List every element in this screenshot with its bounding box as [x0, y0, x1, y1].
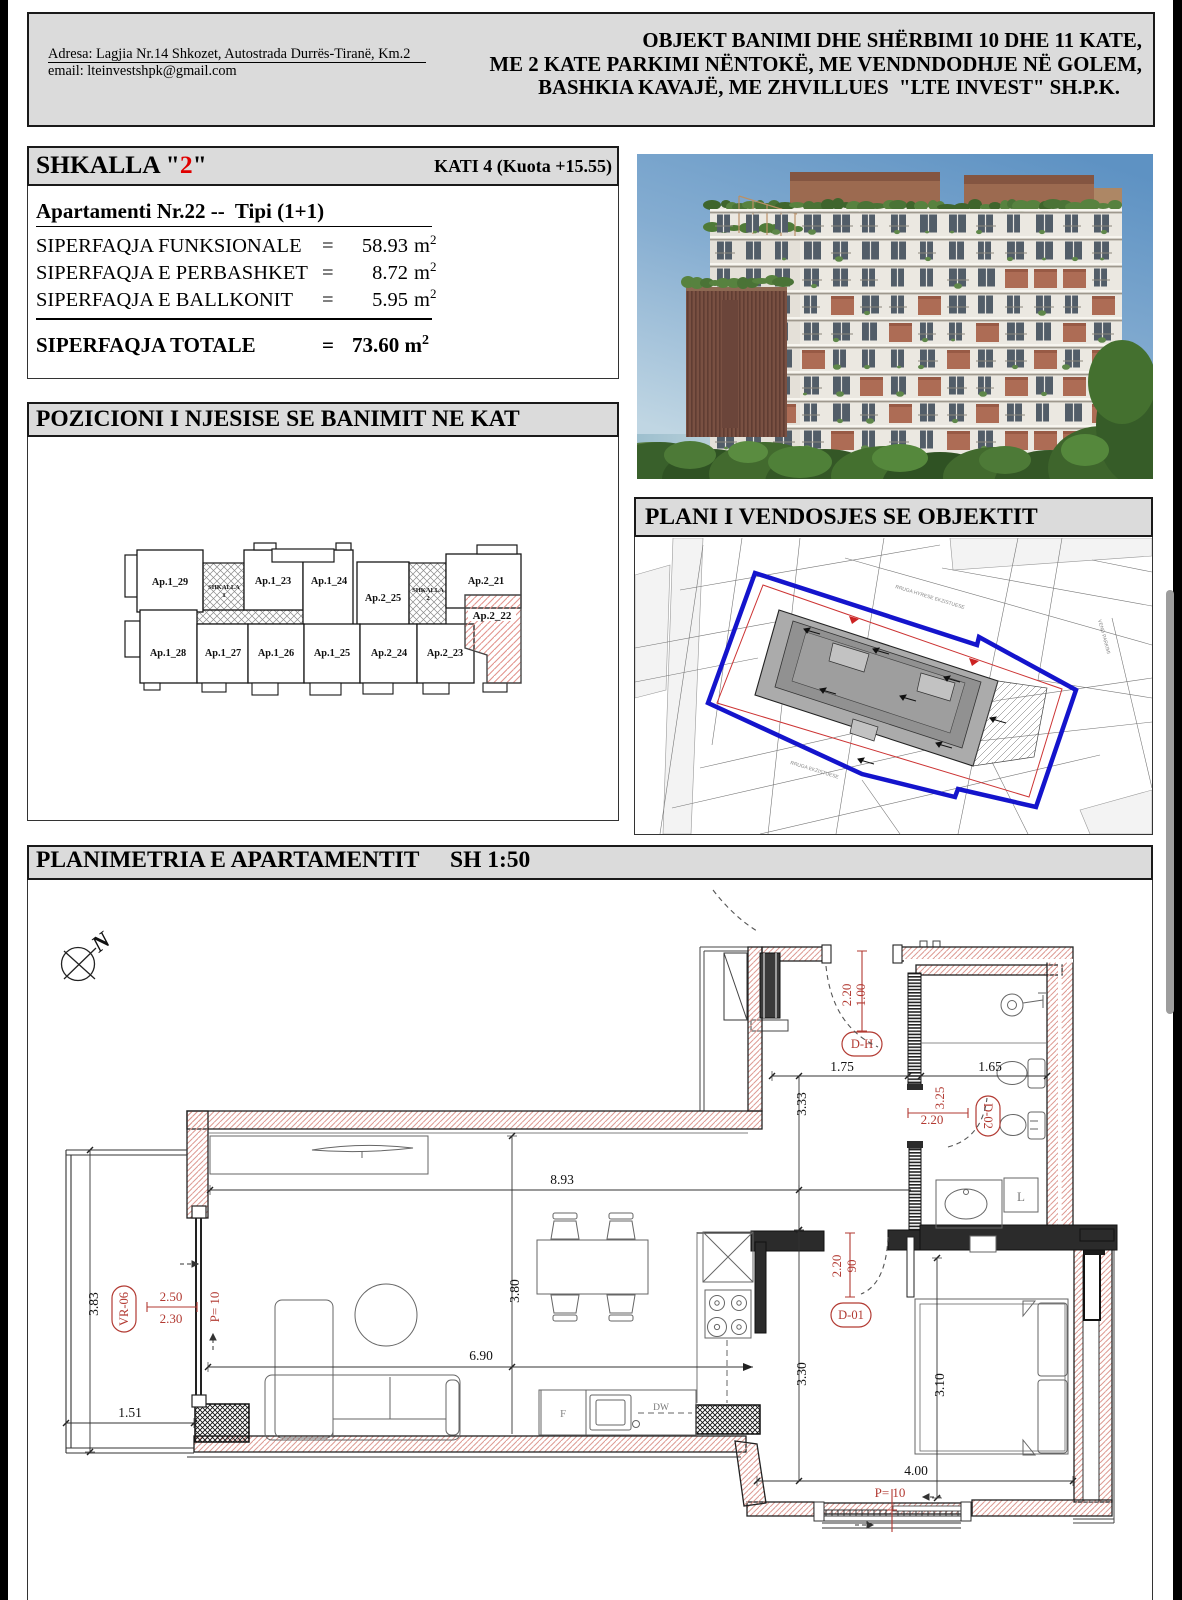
- svg-text:D-H: D-H: [851, 1037, 873, 1051]
- svg-text:1.00: 1.00: [853, 984, 868, 1007]
- svg-text:RRUGA HYRESE EKZISTUESE: RRUGA HYRESE EKZISTUESE: [894, 584, 965, 611]
- svg-text:L: L: [1017, 1189, 1025, 1204]
- svg-text:Ap.2_23: Ap.2_23: [427, 648, 463, 659]
- svg-text:Ap.1_27: Ap.1_27: [205, 648, 241, 659]
- svg-text:2.20: 2.20: [829, 1255, 844, 1278]
- svg-text:4.00: 4.00: [904, 1463, 928, 1478]
- svg-text:Ap.1_28: Ap.1_28: [150, 648, 186, 659]
- svg-text:1.65: 1.65: [978, 1059, 1002, 1074]
- svg-text:Ap.2_21: Ap.2_21: [468, 576, 504, 587]
- svg-text:3.30: 3.30: [794, 1362, 809, 1386]
- svg-text:6.90: 6.90: [469, 1348, 493, 1363]
- svg-text:Ap.1_26: Ap.1_26: [258, 648, 294, 659]
- svg-text:Ap.2_22: Ap.2_22: [473, 610, 512, 622]
- svg-text:3.80: 3.80: [507, 1279, 522, 1303]
- svg-text:DW: DW: [653, 1403, 669, 1413]
- svg-text:1.51: 1.51: [118, 1405, 142, 1420]
- svg-text:90: 90: [844, 1260, 859, 1273]
- svg-text:D-01: D-01: [838, 1308, 864, 1322]
- svg-text:1.75: 1.75: [830, 1059, 854, 1074]
- svg-text:Ap.2_24: Ap.2_24: [371, 648, 407, 659]
- svg-text:F: F: [560, 1408, 566, 1420]
- svg-text:2.50: 2.50: [160, 1289, 183, 1304]
- svg-text:3.33: 3.33: [794, 1092, 809, 1116]
- svg-text:P= 10: P= 10: [875, 1485, 906, 1500]
- svg-text:1: 1: [222, 592, 225, 599]
- svg-text:2.20: 2.20: [921, 1112, 944, 1127]
- svg-text:Ap.1_24: Ap.1_24: [311, 576, 347, 587]
- svg-text:3.10: 3.10: [932, 1373, 947, 1397]
- svg-text:RRUGA EKZISTUESE: RRUGA EKZISTUESE: [789, 760, 839, 781]
- svg-text:P= 10: P= 10: [207, 1292, 222, 1323]
- svg-text:VEND PARKIMI: VEND PARKIMI: [1096, 619, 1111, 655]
- svg-text:Ap.1_29: Ap.1_29: [152, 577, 188, 588]
- svg-text:2.20: 2.20: [839, 984, 854, 1007]
- svg-text:SHKALLA: SHKALLA: [412, 587, 444, 594]
- svg-text:3.25: 3.25: [932, 1087, 947, 1110]
- svg-text:Ap.2_25: Ap.2_25: [365, 593, 401, 604]
- svg-text:8.93: 8.93: [550, 1172, 574, 1187]
- svg-text:2.30: 2.30: [160, 1311, 183, 1326]
- svg-text:3.83: 3.83: [86, 1292, 101, 1316]
- svg-text:VR-06: VR-06: [117, 1292, 131, 1326]
- svg-text:2: 2: [426, 595, 429, 602]
- svg-text:SHKALLA: SHKALLA: [208, 584, 240, 591]
- svg-text:Ap.1_25: Ap.1_25: [314, 648, 350, 659]
- svg-text:Ap.1_23: Ap.1_23: [255, 576, 291, 587]
